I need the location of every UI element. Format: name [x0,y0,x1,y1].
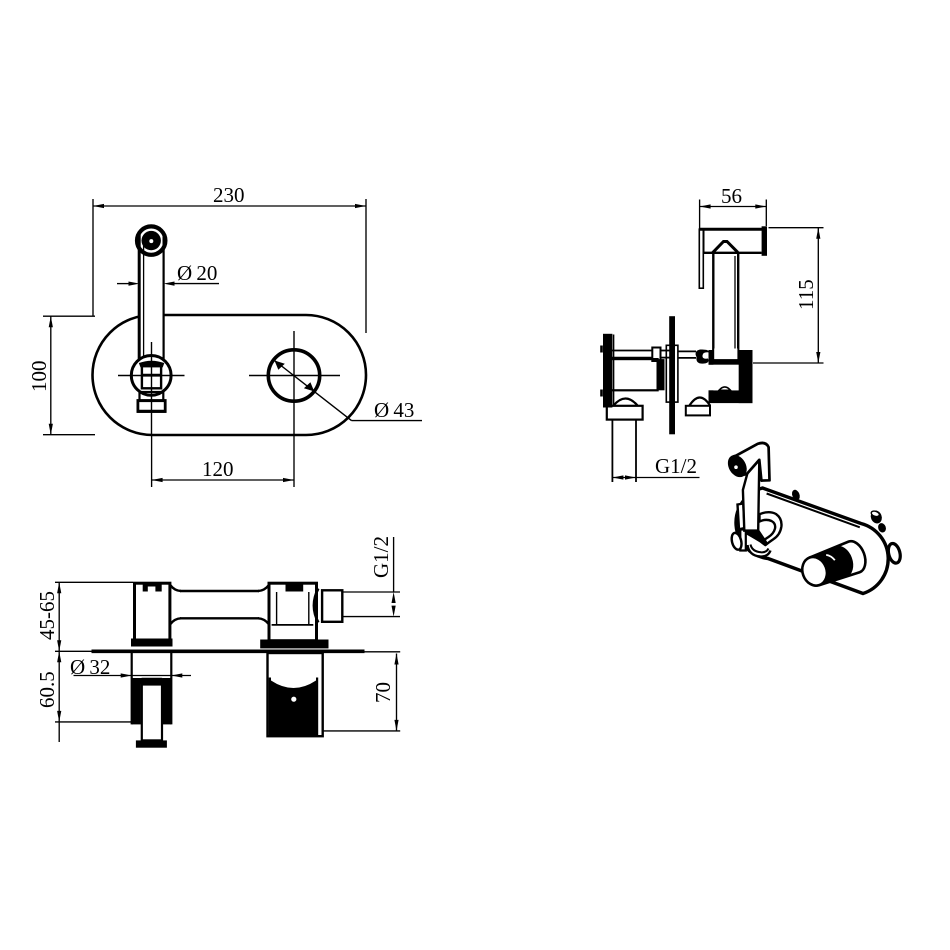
svg-text:Ø 32: Ø 32 [70,655,110,679]
svg-text:120: 120 [202,457,234,481]
svg-text:G1/2: G1/2 [369,536,393,578]
svg-text:G1/2: G1/2 [655,454,697,478]
svg-text:45-65: 45-65 [35,591,59,640]
svg-text:56: 56 [721,184,742,208]
svg-text:70: 70 [371,682,395,703]
svg-text:60.5: 60.5 [35,671,59,708]
svg-text:230: 230 [213,183,245,207]
svg-text:Ø 43: Ø 43 [374,398,414,422]
svg-text:Ø 20: Ø 20 [177,261,217,285]
svg-text:100: 100 [27,361,51,393]
svg-text:115: 115 [794,279,818,310]
